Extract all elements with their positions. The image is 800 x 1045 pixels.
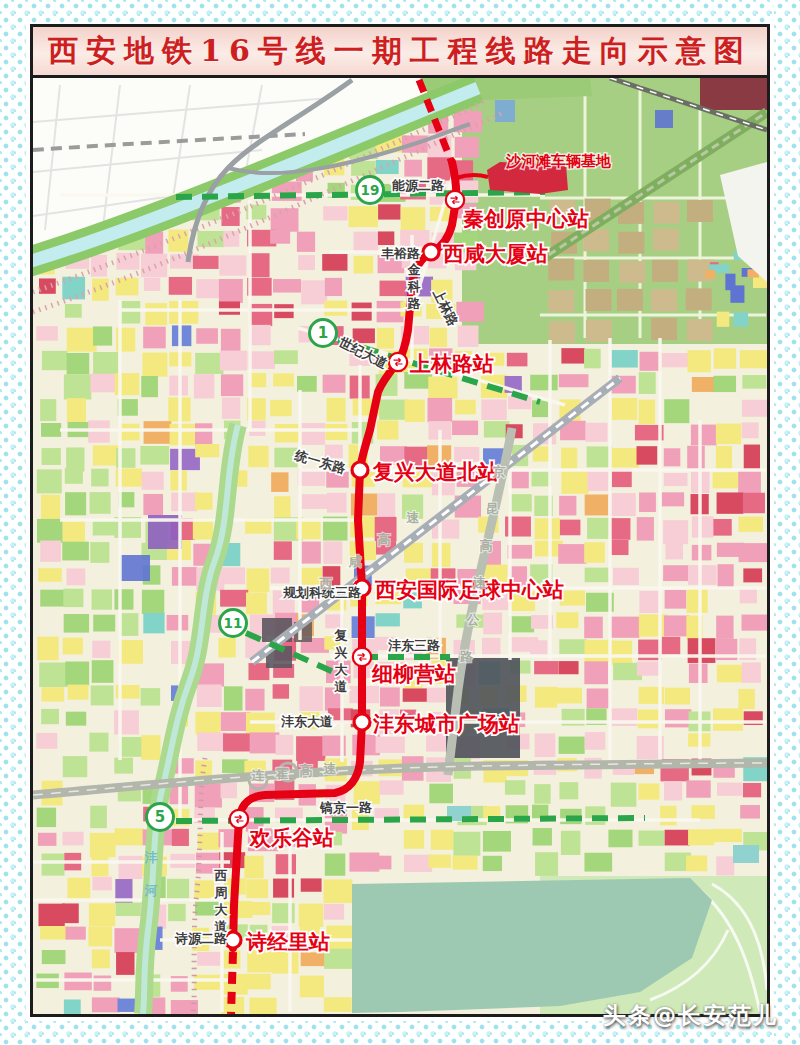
svg-text:周: 周 [214, 885, 228, 900]
station-label: 欢乐谷站 [249, 826, 334, 850]
svg-text:连: 连 [251, 768, 266, 783]
svg-text:公: 公 [466, 612, 481, 627]
road-label: 金科路 [407, 262, 422, 311]
lace-border-right [774, 0, 800, 1045]
line-badge-11: 11 [220, 610, 247, 637]
svg-text:科: 科 [407, 279, 421, 294]
transfer-station-marker [353, 648, 371, 666]
watermark: 头条@长安范儿 [603, 1000, 778, 1031]
svg-text:沣: 沣 [145, 850, 159, 865]
svg-text:昆: 昆 [486, 501, 499, 516]
svg-text:京: 京 [492, 464, 506, 479]
station-marker [225, 932, 241, 948]
transfer-station-marker [230, 810, 248, 828]
road-label: 镐京一路 [319, 800, 373, 815]
line-badge-19: 19 [357, 177, 384, 204]
svg-text:速: 速 [406, 510, 420, 525]
station-label: 诗经里站 [245, 930, 330, 954]
station-label: 西咸大厦站 [442, 242, 548, 266]
svg-text:咸: 咸 [348, 554, 362, 569]
svg-text:高: 高 [480, 538, 493, 553]
line-badge-5: 5 [147, 804, 174, 831]
svg-text:道: 道 [334, 679, 348, 694]
transfer-station-marker [446, 191, 464, 209]
svg-text:霍: 霍 [275, 766, 289, 781]
road-label: 诗源二路 [174, 931, 228, 946]
page-title: 西安地铁16号线一期工程线路走向示意图 [48, 31, 752, 72]
svg-text:西: 西 [214, 868, 228, 883]
lace-border-top [0, 0, 800, 24]
station-marker [352, 462, 368, 478]
svg-text:路: 路 [459, 649, 474, 664]
map-frame: 西安地铁16号线一期工程线路走向示意图 秦创原中心站西咸大厦站上林路站复兴大道北… [30, 24, 770, 1017]
road-label: 丰裕路 [381, 246, 421, 261]
station-label: 复兴大道北站 [372, 460, 499, 484]
road-label: 沣东大道 [281, 714, 333, 729]
station-label: 细柳营站 [371, 662, 456, 686]
station-label: 秦创原中心站 [463, 207, 589, 231]
svg-text:西: 西 [319, 576, 333, 591]
road-label: 沣东三路 [388, 638, 441, 653]
svg-text:大: 大 [335, 662, 349, 677]
station-label: 沣东城市广场站 [372, 712, 520, 736]
svg-text:11: 11 [224, 615, 243, 631]
svg-text:19: 19 [361, 182, 380, 198]
station-marker [354, 714, 370, 730]
svg-text:1: 1 [318, 324, 328, 342]
depot-label: 沙河滩车辆基地 [505, 152, 611, 170]
svg-text:路: 路 [407, 296, 422, 311]
station-label: 上林路站 [409, 352, 494, 376]
svg-text:河: 河 [144, 883, 158, 898]
lace-border-left [0, 0, 26, 1045]
svg-text:高: 高 [300, 763, 313, 778]
transfer-station-marker [389, 353, 407, 371]
svg-text:兴: 兴 [334, 645, 348, 660]
svg-text:大: 大 [215, 902, 229, 917]
station-label: 西安国际足球中心站 [374, 578, 564, 602]
line-badge-1: 1 [310, 320, 337, 347]
svg-text:速: 速 [323, 761, 337, 776]
svg-text:5: 5 [155, 808, 165, 826]
route-map: 秦创原中心站西咸大厦站上林路站复兴大道北站西安国际足球中心站细柳营站沣东城市广场… [33, 78, 767, 1014]
svg-text:高: 高 [378, 532, 391, 547]
road-label: 能源二路 [392, 178, 445, 193]
svg-text:速: 速 [472, 575, 486, 590]
map-canvas: 秦创原中心站西咸大厦站上林路站复兴大道北站西安国际足球中心站细柳营站沣东城市广场… [33, 78, 767, 1014]
svg-text:复: 复 [334, 628, 348, 643]
svg-text:金: 金 [407, 262, 422, 277]
station-marker [423, 244, 439, 260]
title-bar: 西安地铁16号线一期工程线路走向示意图 [33, 27, 767, 78]
